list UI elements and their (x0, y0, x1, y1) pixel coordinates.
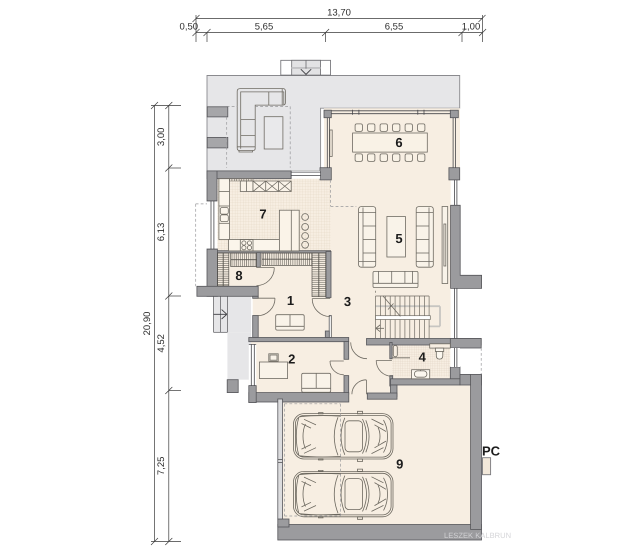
svg-text:3,00: 3,00 (156, 128, 167, 147)
svg-text:20,90: 20,90 (142, 312, 153, 336)
svg-text:1,00: 1,00 (462, 22, 481, 33)
svg-text:2: 2 (288, 352, 295, 367)
svg-text:5: 5 (395, 231, 402, 246)
svg-text:4: 4 (419, 350, 427, 365)
svg-text:5,65: 5,65 (255, 22, 274, 33)
svg-text:7,25: 7,25 (156, 457, 167, 476)
svg-text:8: 8 (235, 268, 242, 283)
svg-text:4,52: 4,52 (156, 334, 167, 353)
svg-text:6,13: 6,13 (156, 223, 167, 242)
svg-text:7: 7 (259, 207, 266, 222)
svg-text:9: 9 (396, 457, 403, 472)
svg-text:1: 1 (287, 293, 294, 308)
svg-text:6: 6 (395, 135, 402, 150)
svg-text:6,55: 6,55 (385, 22, 404, 33)
svg-text:13,70: 13,70 (327, 8, 351, 19)
svg-text:LESZEK KALBRUN: LESZEK KALBRUN (444, 531, 511, 540)
svg-text:0,50: 0,50 (180, 22, 199, 33)
svg-text:PC: PC (482, 444, 501, 459)
svg-text:3: 3 (344, 294, 351, 309)
